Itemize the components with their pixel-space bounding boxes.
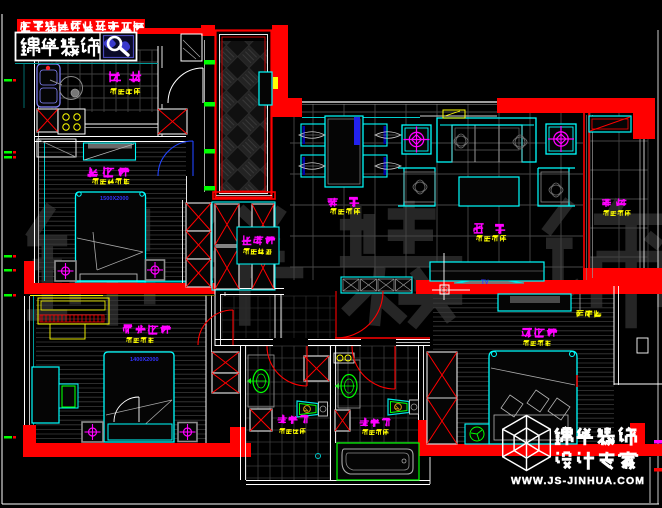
svg-text:TV: TV <box>481 280 489 286</box>
svg-text:WWW.JS-JINHUA.COM: WWW.JS-JINHUA.COM <box>511 476 645 487</box>
svg-text:1400X2000: 1400X2000 <box>130 357 159 363</box>
svg-text:1500X2000: 1500X2000 <box>100 196 129 202</box>
